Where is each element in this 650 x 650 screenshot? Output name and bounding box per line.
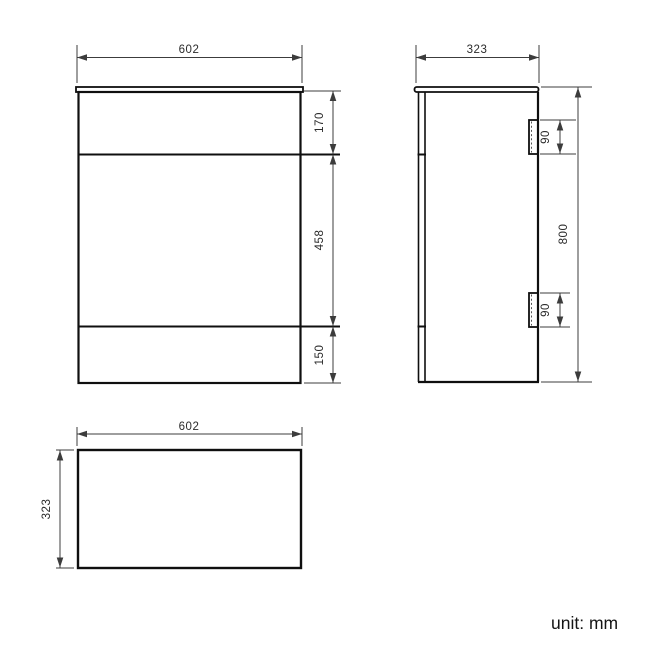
front-width-label: 602 — [179, 44, 200, 56]
front-width-dimension: 602 — [77, 44, 302, 83]
unit-note: unit: mm — [551, 613, 618, 633]
bottom-bracket-label: 90 — [540, 303, 552, 317]
side-view: 323 800 90 90 — [415, 44, 593, 382]
front-door-section-label: 458 — [314, 230, 326, 251]
top-width-label: 602 — [179, 421, 200, 433]
front-body-outline — [79, 92, 301, 383]
front-top-panel-label: 170 — [314, 112, 326, 133]
top-depth-dimension: 323 — [41, 450, 74, 568]
side-countertop-outline — [415, 87, 539, 92]
top-bracket-label: 90 — [540, 130, 552, 144]
top-depth-label: 323 — [41, 499, 53, 520]
side-depth-dimension: 323 — [416, 44, 539, 83]
wall-bracket-top — [529, 120, 538, 154]
front-plinth-label: 150 — [314, 345, 326, 366]
side-depth-label: 323 — [467, 44, 488, 56]
technical-drawing-page: 602 170 458 150 — [0, 0, 650, 650]
top-bracket-dimension: 90 — [540, 120, 576, 154]
front-height-dimensions: 170 458 150 — [304, 91, 341, 383]
top-view: 602 323 — [41, 421, 302, 568]
side-height-label: 800 — [558, 224, 570, 245]
top-width-dimension: 602 — [77, 421, 302, 446]
bottom-bracket-dimension: 90 — [540, 293, 570, 327]
wall-bracket-bottom — [529, 293, 538, 327]
top-view-outline — [78, 450, 301, 568]
vanity-unit-dimension-drawing: 602 170 458 150 — [0, 0, 650, 650]
front-view: 602 170 458 150 — [76, 44, 341, 383]
